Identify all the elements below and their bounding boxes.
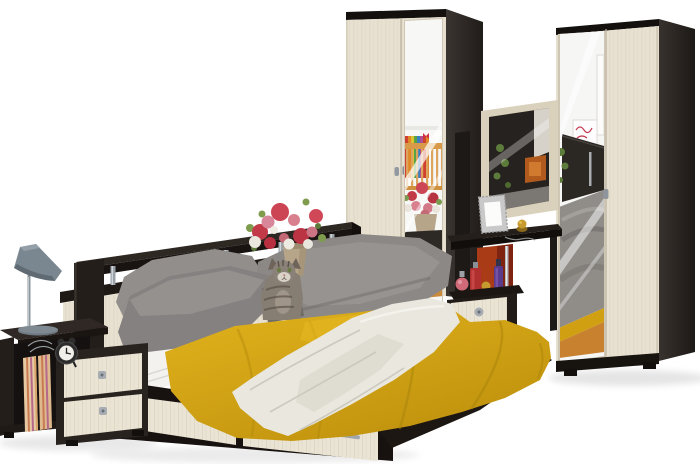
wardrobe-left-handle: [395, 167, 400, 176]
table-lamp: [14, 244, 62, 336]
wardrobe-right-mirror-reflection: [557, 30, 606, 364]
wardrobe-right-handle: [604, 189, 609, 199]
alarm-clock: [56, 338, 78, 369]
vanity-table: [447, 100, 562, 339]
photo-frame: [479, 195, 508, 233]
bedroom-set-photo: [0, 0, 700, 464]
wardrobe-right: [556, 19, 695, 376]
